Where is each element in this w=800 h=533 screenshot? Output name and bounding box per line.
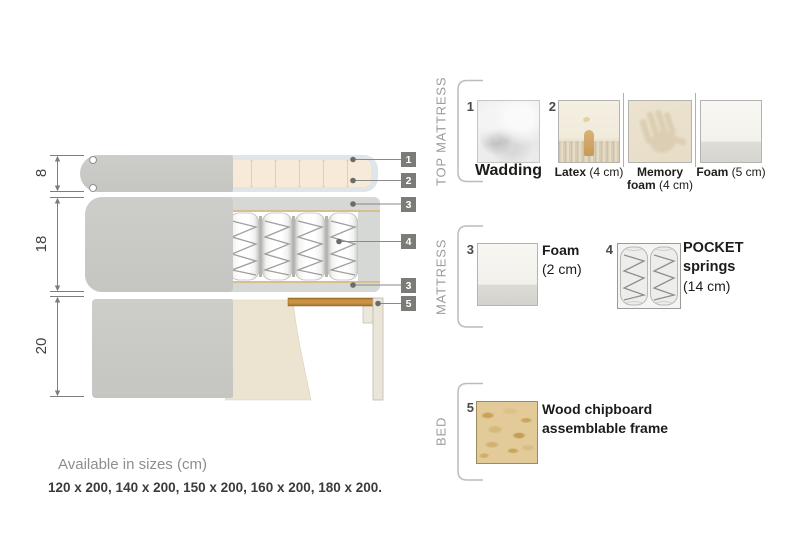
item-number: 5 [462,400,474,415]
bed-drape [225,300,311,400]
dimension-label-8: 8 [32,164,50,182]
divider [623,93,624,167]
bed-frame-post [373,298,383,400]
wood-slat [288,298,377,306]
top-mattress-wadding-frame [228,155,378,192]
sizes-title: Available in sizes (cm) [58,456,207,473]
dimension-20 [50,297,84,397]
bed-bracket-piece [363,306,373,323]
mattress-layers-infographic: 8 18 20 [0,0,800,533]
wadding-image [477,100,540,163]
pocket-springs-area [228,212,358,281]
top-mattress-cover-fabric [80,155,233,192]
callout-2: 2 [401,173,416,188]
callout-1: 1 [401,152,416,167]
section-title-bed: BED [433,383,449,480]
latex-block [348,160,371,187]
callout-3-top: 3 [401,197,416,212]
dimension-label-18: 18 [32,232,50,256]
foam-2cm-image [477,243,538,306]
item-number: 4 [601,242,613,257]
dimension-label-20: 20 [32,334,50,358]
callout-3-bottom: 3 [401,278,416,293]
latex-block-row [228,160,371,187]
item-number: 2 [544,99,556,114]
callout-4: 4 [401,234,416,249]
mattress-button [89,156,97,164]
foam-layer-line [228,281,380,283]
item-caption-foam-2: Foam (2 cm) [542,241,582,279]
latex-block [252,160,275,187]
dimension-8 [50,156,84,192]
latex-crumb [582,116,590,123]
item-caption-wadding: Wadding [460,164,557,177]
memory-foam-image [628,100,692,163]
mattress-button [89,184,97,192]
hand-imprint [629,101,692,163]
item-number: 3 [462,242,474,257]
latex-image [558,100,620,163]
mattress-cutaway [228,197,380,292]
item-caption-chipboard: Wood chipboard assemblable frame [542,400,668,438]
pocket-springs-icon [618,244,680,308]
item-caption-pocket-springs: POCKET springs (14 cm) [683,239,743,297]
foam-layer-line [228,210,380,212]
callout-5: 5 [401,296,416,311]
latex-block [324,160,347,187]
item-caption-foam-5: Foam (5 cm) [688,166,774,179]
foam-image [700,100,762,163]
section-title-mattress: MATTRESS [433,226,449,327]
bed-frame-drawing [225,296,387,401]
pocket-springs-image [617,243,681,309]
latex-finger [584,130,594,156]
sizes-list: 120 x 200, 140 x 200, 150 x 200, 160 x 2… [48,480,382,495]
latex-block [300,160,323,187]
mattress-cover-fabric [85,197,233,292]
dimension-18 [50,198,84,292]
section-title-top-mattress: TOP MATTRESS [433,80,449,183]
divider [695,93,696,167]
pocket-springs-drawing [228,212,358,281]
latex-block [276,160,299,187]
chipboard-image [476,401,538,464]
item-number: 1 [462,99,474,114]
bed-cover-fabric [92,299,233,398]
